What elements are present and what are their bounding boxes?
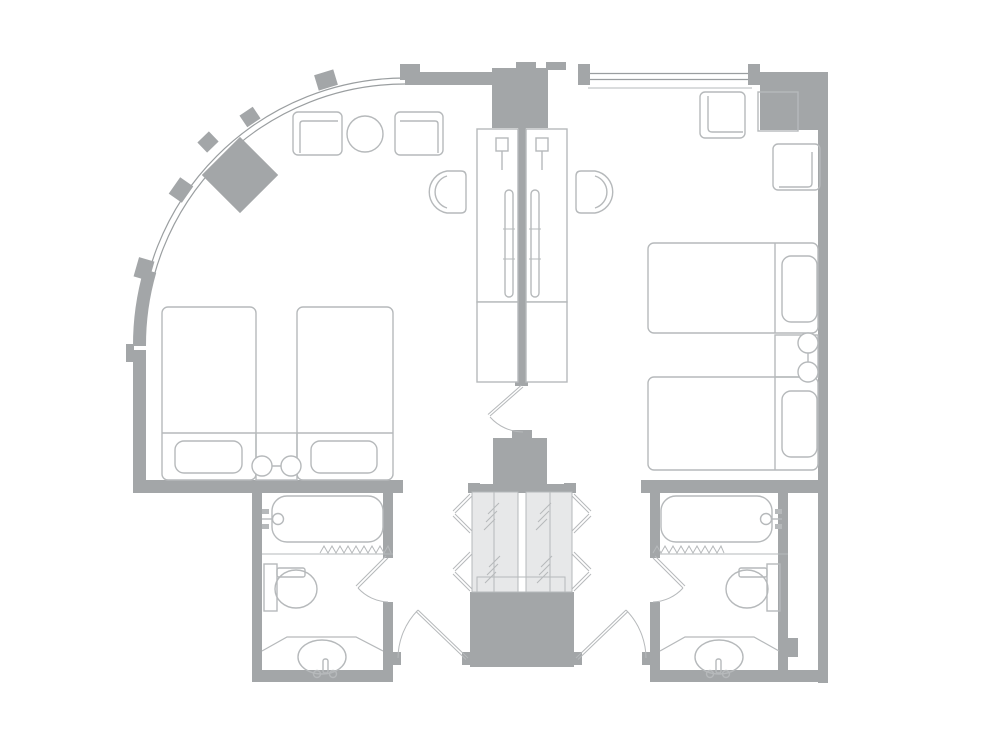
bathL-vanity-counter <box>262 637 383 651</box>
bathR-toilet-bowl <box>726 570 768 608</box>
window-mullion-left-tab <box>578 64 590 85</box>
bathR-chase-block <box>778 638 798 657</box>
right-room-bottom-wall <box>641 480 828 493</box>
pillow-right-2 <box>782 391 817 457</box>
bathR-door-swing <box>653 588 683 602</box>
armchair-ne-back <box>708 96 743 132</box>
armchair-e-back <box>779 152 812 187</box>
bathR-left-wall-lower <box>650 602 660 670</box>
center-spine-wall <box>518 128 526 378</box>
left-room-bottom-wall <box>133 480 403 493</box>
bathL-right-wall-upper <box>383 493 393 558</box>
entry-bottom-block <box>470 592 574 667</box>
bathL-door-swing <box>358 588 388 602</box>
structural-column <box>202 137 278 213</box>
bathL-tub-faucet <box>273 514 284 525</box>
left-outer-wall <box>133 350 146 493</box>
console-left <box>477 129 518 302</box>
window-mullion-right-tab <box>748 64 760 85</box>
bathR-vanity-counter <box>660 637 779 651</box>
lounge-chair-right-back <box>400 121 438 153</box>
bathL-door-leaf <box>356 556 388 588</box>
lamp-left-b <box>281 456 301 476</box>
floor-plan-page <box>0 0 1000 750</box>
connecting-door-swing <box>490 417 523 432</box>
lamp-left-a <box>252 456 272 476</box>
lamp-right-b <box>798 362 818 382</box>
floor-plan-svg <box>0 0 1000 750</box>
lamp-right-a <box>798 333 818 353</box>
console-right-cabinet <box>526 302 567 382</box>
bathL-sink <box>298 640 346 674</box>
bathR-tub <box>661 496 772 542</box>
armchair-e <box>773 144 820 190</box>
curved-solid-wall <box>139 271 150 346</box>
bathL-shower-curtain <box>320 546 391 553</box>
entry-top-block <box>493 438 547 487</box>
bathL-tub <box>272 496 383 542</box>
lounge-chair-left-back <box>300 121 338 153</box>
bathR-shower-curtain <box>653 546 724 553</box>
top-wall-left <box>405 72 492 85</box>
pillow-left-1 <box>175 441 242 473</box>
bathL-right-wall-lower <box>383 602 393 670</box>
bathL-toilet-bowl <box>275 570 317 608</box>
closet-door-right-upper <box>572 494 591 533</box>
armchair-ne <box>700 92 745 138</box>
wardrobe-chase-block <box>492 68 548 128</box>
bathR-sink <box>695 640 743 674</box>
connecting-door-leaf <box>488 386 523 417</box>
entry-door-left-swing <box>398 610 418 658</box>
entry-door-right-swing <box>626 610 646 658</box>
desk-chair-left-inner <box>435 176 447 208</box>
bathR-door-leaf <box>653 556 685 588</box>
bathR-tub-faucet <box>761 514 772 525</box>
chase-tab-a <box>516 62 536 70</box>
bathL-left-wall <box>252 493 262 682</box>
right-outer-wall <box>818 130 828 683</box>
bathR-valve-b <box>775 524 782 529</box>
pillow-right-1 <box>782 256 817 322</box>
bathL-valve-b <box>262 524 269 529</box>
console-left-cabinet <box>477 302 518 382</box>
bathL-door-jamb <box>393 652 401 665</box>
left-wall-tab <box>126 344 134 362</box>
entry-door-left-leaf <box>416 610 468 660</box>
lounge-table <box>347 116 383 152</box>
bathL-valve-a <box>262 509 269 514</box>
chase-tab-b <box>546 62 566 70</box>
pillow-left-2 <box>311 441 377 473</box>
entry-door-right-leaf <box>576 610 628 660</box>
wall-mullion-6 <box>197 131 218 152</box>
console-right <box>526 129 567 302</box>
bathR-valve-a <box>775 509 782 514</box>
lounge-chair-right <box>395 112 443 155</box>
curved-glass-outer <box>139 78 405 344</box>
bathR-bottom-wall <box>650 670 828 682</box>
wall-mullion-3 <box>239 107 260 128</box>
corner-block-ne <box>760 72 828 130</box>
closet-door-right-lower <box>572 552 591 591</box>
desk-chair-right-inner <box>595 176 607 208</box>
curved-glass-inner <box>145 84 405 344</box>
closet-door-left-upper <box>453 494 472 533</box>
closet-door-left-lower <box>453 552 472 591</box>
